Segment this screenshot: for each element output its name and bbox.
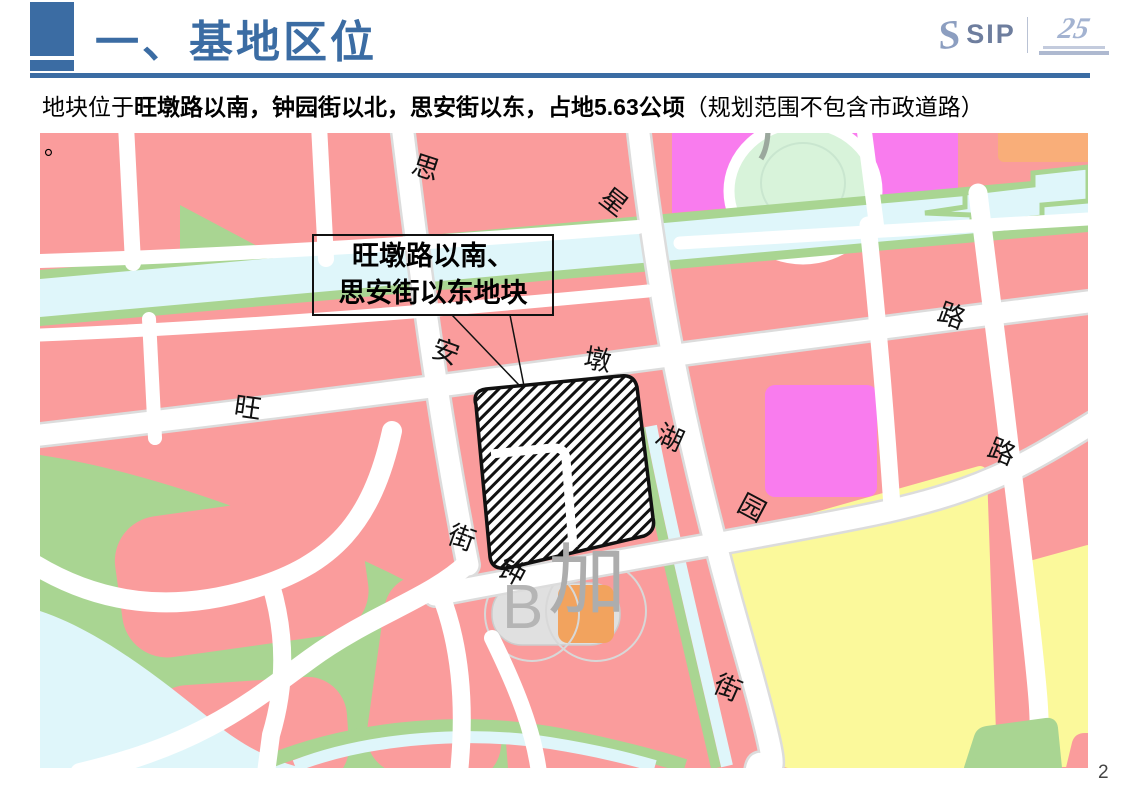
- watermark-factory-glyph: 厂: [756, 133, 822, 165]
- sip-swoosh-icon: S: [935, 13, 963, 56]
- description-bold: 旺墩路以南，钟园街以北，思安街以东，占地5.63公顷: [134, 94, 685, 120]
- logo-fineprint-line1: [1043, 46, 1105, 49]
- magenta-block: [765, 385, 877, 497]
- page-number: 2: [1098, 762, 1109, 784]
- header-accent-bar: [30, 60, 74, 71]
- site-description-line2: 。: [44, 127, 67, 161]
- watermark-jia-glyph: 加: [548, 541, 626, 619]
- header-accent-square: [30, 2, 74, 56]
- map-graphic: [40, 133, 1088, 768]
- anniversary-number: 25: [1056, 14, 1092, 44]
- road-label-wang: 旺: [232, 393, 262, 423]
- sip-logo: S SIP 25: [938, 14, 1109, 55]
- description-tail: （规划范围不包含市政道路）: [685, 94, 984, 120]
- site-description: 地块位于旺墩路以南，钟园街以北，思安街以东，占地5.63公顷（规划范围不包含市政…: [42, 88, 984, 122]
- slide: 一、基地区位 S SIP 25 地块位于旺墩路以南，钟园街以北，思安街以东，占地…: [0, 0, 1123, 794]
- road-label-dun: 墩: [582, 345, 613, 376]
- site-callout: 旺墩路以南、 思安街以东地块: [312, 234, 554, 316]
- logo-divider: [1027, 17, 1028, 53]
- anniversary-logo: 25: [1039, 14, 1109, 55]
- sip-logo-text: SIP: [966, 19, 1016, 50]
- logo-fineprint-line2: [1039, 51, 1109, 55]
- location-map: 厂 B 加 思 安 街 星 湖 街 旺 墩 路 钟 园 路 旺墩路以南、 思安街…: [40, 133, 1088, 768]
- site-callout-line1: 旺墩路以南、: [352, 238, 514, 275]
- page-title: 一、基地区位: [95, 6, 377, 70]
- header-underline: [30, 73, 1090, 78]
- site-callout-line2: 思安街以东地块: [339, 275, 528, 312]
- description-intro: 地块位于: [42, 94, 134, 120]
